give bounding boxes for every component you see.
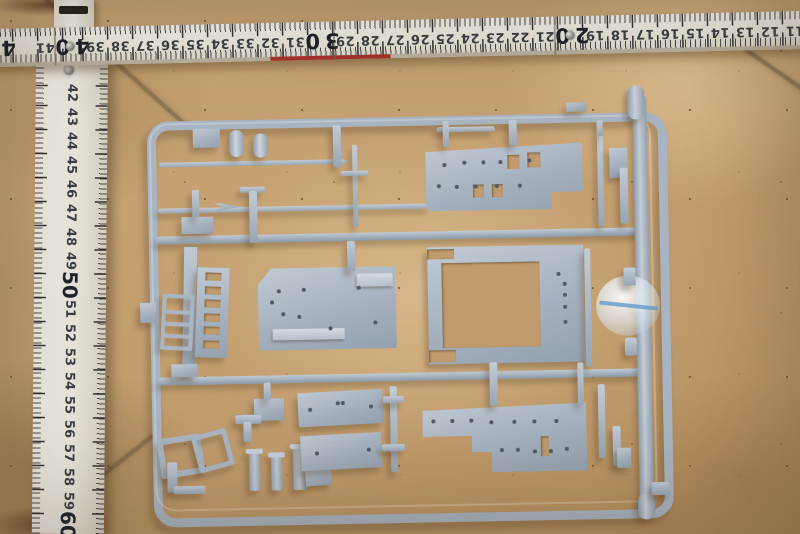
deck-plate-mid-left — [257, 266, 397, 351]
ladder-rung — [165, 322, 189, 327]
connector-stub-7 — [577, 362, 584, 404]
cm-number-52: 52 — [62, 324, 77, 342]
cm-number-55: 55 — [61, 396, 76, 414]
part-hole — [549, 449, 553, 453]
post-flange — [246, 449, 263, 454]
part-hole — [499, 160, 503, 164]
part-cutout — [205, 286, 221, 295]
post-1 — [249, 449, 261, 491]
part-cutout — [204, 300, 220, 309]
part-cutout — [541, 436, 550, 457]
part-hole — [481, 161, 485, 165]
part-hole — [563, 281, 567, 285]
cm-number-24: 24 — [460, 30, 479, 45]
part-hole — [512, 419, 516, 423]
top-rail-tab — [566, 102, 586, 111]
part-hole — [564, 320, 568, 324]
cm-number-60: 60 — [56, 511, 80, 534]
runner-cap-2 — [382, 444, 405, 451]
cm-number-57: 57 — [61, 444, 76, 462]
cm-number-45: 45 — [63, 156, 78, 174]
small-plate-1 — [181, 217, 213, 235]
cm-number-35: 35 — [185, 36, 204, 51]
folding-ruler-vertical: 42434445464748495051525354555657585960 — [32, 58, 108, 534]
runner-stub-top — [627, 85, 645, 119]
crossbar — [341, 171, 369, 177]
ruler-end-clasp — [59, 6, 88, 14]
connector-stub-5 — [597, 120, 603, 136]
elbow-rod-h — [174, 486, 206, 495]
cm-number-25: 25 — [435, 30, 454, 45]
blob-blue-line — [599, 300, 658, 310]
part-cutout — [204, 313, 220, 322]
part-hole — [474, 185, 478, 189]
cm-number-29: 29 — [335, 33, 354, 48]
cm-number-56: 56 — [61, 420, 76, 438]
part-hole — [527, 159, 531, 163]
cm-number-23: 23 — [485, 29, 504, 44]
cm-number-15: 15 — [685, 25, 704, 40]
part-hole — [518, 184, 522, 188]
cm-number-50: 50 — [58, 271, 82, 299]
sprue — [0, 0, 800, 534]
cm-number-18: 18 — [610, 26, 629, 41]
part-hole — [563, 293, 567, 297]
part-hole — [270, 301, 274, 305]
cm-number-54: 54 — [62, 372, 77, 390]
connector-stub-3 — [443, 121, 449, 147]
cylinder-part-2 — [253, 134, 268, 158]
cm-number-26: 26 — [410, 31, 429, 46]
part-hole — [276, 289, 280, 293]
cm-number-28: 28 — [360, 32, 379, 47]
part-hole — [369, 404, 373, 408]
cm-number-16: 16 — [660, 25, 679, 40]
cm-number-46: 46 — [63, 180, 78, 198]
part-cutout — [429, 350, 456, 362]
t-rod-stem — [249, 191, 258, 243]
cm-number-17: 17 — [635, 26, 654, 41]
edge-digit: 4 — [0, 36, 16, 60]
tab-on-left-rail — [140, 303, 156, 323]
cm-number-38: 38 — [110, 38, 129, 53]
part-hole — [308, 408, 312, 412]
rail-stub-1 — [623, 267, 635, 285]
part-hole — [455, 185, 459, 189]
photo-stage: 42434445464748495051525354555657585960 4… — [0, 0, 800, 534]
cm-number-14: 14 — [710, 24, 729, 39]
part-hole — [281, 312, 285, 316]
cm-number-27: 27 — [385, 31, 404, 46]
cm-number-39: 39 — [85, 38, 104, 53]
connector-stub-4 — [509, 120, 517, 146]
part-hole — [469, 419, 473, 423]
part-cutout — [441, 262, 541, 348]
strip-right-2 — [620, 168, 629, 224]
part-hole — [532, 419, 536, 423]
cm-number-34: 34 — [210, 35, 229, 50]
raised-detail — [272, 328, 344, 341]
part-cutout — [203, 340, 219, 349]
tab-on-mid-rail — [171, 364, 197, 377]
connector-stub-6 — [489, 362, 498, 406]
part-hole — [336, 401, 340, 405]
part-hole — [301, 288, 305, 292]
post-flange — [268, 452, 285, 457]
ladder-rung — [166, 310, 190, 315]
small-bar-1 — [192, 190, 200, 218]
part-hole — [432, 420, 436, 424]
cm-number-37: 37 — [135, 37, 154, 52]
cm-number-11: 11 — [785, 22, 800, 37]
stub-to-rect — [264, 383, 271, 401]
part-hole — [494, 184, 498, 188]
deck-small-b — [300, 432, 383, 471]
valve-stem — [243, 422, 251, 442]
slatted-wall — [195, 267, 230, 358]
cylinder-part-1 — [229, 130, 245, 157]
open-frame-deck — [427, 244, 585, 364]
cm-number-58: 58 — [61, 468, 76, 486]
part-hole — [565, 447, 569, 451]
post-2 — [271, 452, 283, 490]
cm-number-13: 13 — [735, 24, 754, 39]
cm-number-48: 48 — [63, 228, 78, 246]
connector-stub-2 — [347, 241, 356, 271]
part-hole — [557, 272, 561, 276]
small-sq-br — [617, 448, 631, 468]
part-cutout — [427, 249, 454, 259]
part-cutout — [205, 273, 221, 282]
part-hole — [442, 163, 446, 167]
runner-cap-1 — [383, 396, 404, 403]
cm-number-49: 49 — [63, 252, 78, 270]
part-cutout — [507, 154, 520, 169]
part-hole — [298, 315, 302, 319]
ladder-rung — [165, 334, 189, 339]
cm-number-51: 51 — [62, 300, 77, 318]
cm-number-22: 22 — [510, 29, 529, 44]
cm-number-36: 36 — [160, 36, 179, 51]
part-hole — [356, 286, 360, 290]
part-cutout — [203, 327, 219, 336]
part-hole — [374, 320, 378, 324]
part-hole — [563, 305, 567, 309]
tab-part-1 — [193, 128, 220, 148]
cm-number-19: 19 — [585, 27, 604, 42]
hinge-rivet — [64, 65, 74, 75]
cm-number-32: 32 — [260, 34, 279, 49]
connector-stub-1 — [333, 125, 342, 167]
part-hole — [516, 448, 520, 452]
rail-stub-2 — [625, 337, 637, 355]
runner-stub-bottom — [638, 493, 655, 519]
part-hole — [367, 447, 371, 451]
part-hole — [328, 326, 332, 330]
cm-number-12: 12 — [760, 23, 779, 38]
part-hole — [450, 419, 454, 423]
strip-br-1 — [598, 384, 606, 458]
part-hole — [555, 419, 559, 423]
cm-number-30: 30 — [300, 28, 340, 53]
cm-number-53: 53 — [62, 348, 77, 366]
part-hole — [341, 401, 345, 405]
part-hole — [436, 184, 440, 188]
ladder-part — [160, 294, 195, 352]
cm-number-33: 33 — [235, 35, 254, 50]
deck-small-a — [297, 389, 384, 428]
raised-detail — [357, 273, 393, 288]
cm-number-44: 44 — [64, 132, 79, 150]
part-hole — [315, 452, 319, 456]
part-hole — [532, 449, 536, 453]
cm-number-47: 47 — [63, 204, 78, 222]
cm-number-42: 42 — [64, 84, 79, 102]
part-hole — [489, 420, 493, 424]
cm-number-43: 43 — [64, 108, 79, 126]
runner-stub-right — [652, 482, 670, 495]
part-hole — [500, 448, 504, 452]
part-hole — [463, 161, 467, 165]
cm-number-59: 59 — [61, 492, 76, 510]
